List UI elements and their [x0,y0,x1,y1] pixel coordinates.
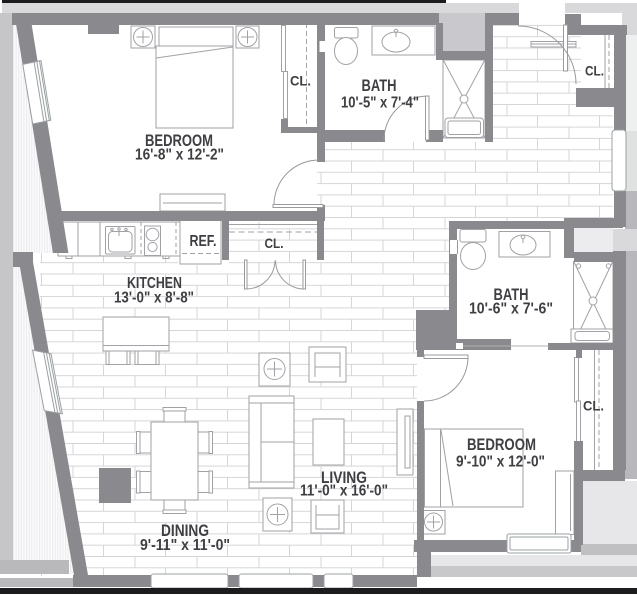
svg-text:11'-0" x 16'-0": 11'-0" x 16'-0" [300,483,388,500]
svg-text:10'-6" x 7'-6": 10'-6" x 7'-6" [469,301,553,318]
svg-text:CL.: CL. [583,399,604,414]
svg-text:9'-11" x 11'-0": 9'-11" x 11'-0" [140,537,230,554]
svg-text:10'-5" x 7'-4": 10'-5" x 7'-4" [341,95,419,112]
svg-text:9'-10" x 12'-0": 9'-10" x 12'-0" [456,454,545,471]
svg-text:CL.: CL. [265,236,284,251]
svg-text:CL.: CL. [290,74,311,89]
svg-text:CL.: CL. [585,64,604,79]
svg-text:REF.: REF. [190,233,217,250]
svg-text:13'-0" x 8'-8": 13'-0" x 8'-8" [114,290,194,307]
svg-text:BATH: BATH [362,76,397,95]
svg-text:16'-8" x 12'-2": 16'-8" x 12'-2" [135,147,224,164]
svg-text:BEDROOM: BEDROOM [467,436,536,454]
